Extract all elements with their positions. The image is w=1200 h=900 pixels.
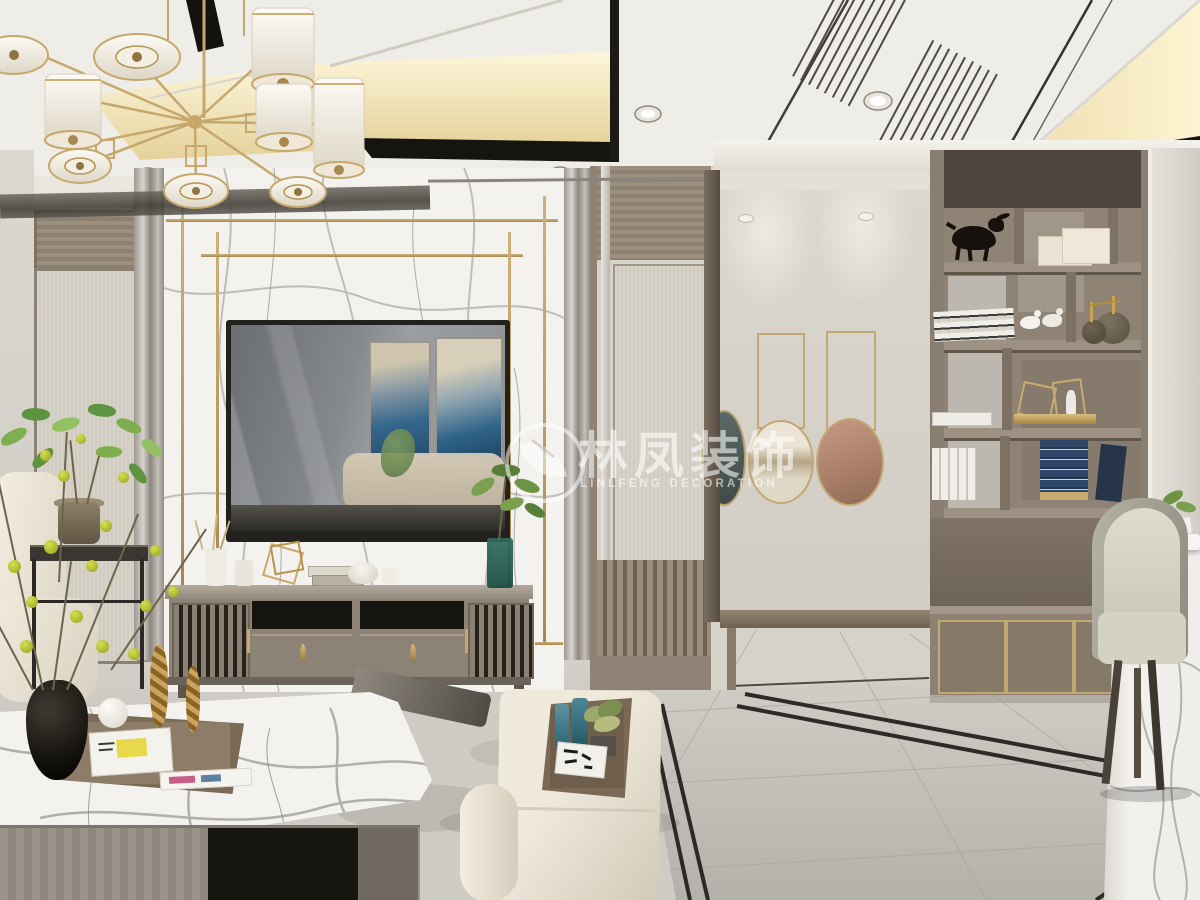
cabinet-door <box>1006 620 1074 694</box>
side-table-rail <box>32 600 144 603</box>
cabinet-open-shelf <box>252 601 352 629</box>
plate-hanger-frame <box>826 331 876 431</box>
gold-candlestick <box>150 645 168 727</box>
watermark-logo-icon <box>505 423 585 503</box>
hallway-baseboard <box>720 610 930 628</box>
yellow-label <box>116 738 147 758</box>
watermark-subtitle: LINLFENG DECORATION <box>580 478 830 490</box>
chair-leg <box>1134 668 1141 778</box>
gold-chandelier <box>0 0 380 245</box>
gold-frame-inlay <box>535 642 563 645</box>
hallway-downlight <box>738 214 754 223</box>
gold-figurines-on-stones <box>1082 296 1144 344</box>
teal-vase <box>555 704 569 746</box>
berry <box>86 560 98 572</box>
shelf-divider <box>1014 208 1024 264</box>
berry <box>58 470 70 482</box>
cabinet-top <box>165 585 533 599</box>
books-navy-stack <box>1040 440 1088 496</box>
door-pull <box>247 629 250 653</box>
tv-screen <box>231 325 505 531</box>
cabinet-plinth <box>167 677 531 685</box>
living-room-rendering: 林凤装饰 LINLFENG DECORATION <box>0 0 1200 900</box>
tv-reflection-cabinet <box>231 505 505 531</box>
gold-frame-inlay <box>216 232 219 585</box>
berry <box>96 640 109 653</box>
white-book <box>89 727 174 777</box>
drawer-handle <box>410 644 416 662</box>
berry <box>44 540 58 554</box>
hallway-door-jamb <box>704 170 720 622</box>
dining-chair-seat <box>1098 612 1186 664</box>
berry <box>150 545 161 556</box>
white-cards <box>554 741 607 778</box>
decor-box <box>1062 228 1110 264</box>
green-glass-vase <box>487 538 513 588</box>
coffee-table-niche <box>208 828 358 900</box>
gold-frame-inlay <box>201 254 523 257</box>
teal-vase <box>572 698 588 746</box>
berry <box>128 648 140 660</box>
white-bowl <box>348 562 378 584</box>
shelf-divider <box>1002 348 1012 430</box>
hallway-downlight <box>858 212 874 221</box>
berry <box>26 596 38 608</box>
cabinet-door <box>938 620 1006 694</box>
berry <box>40 450 51 461</box>
dove-figurines <box>1020 306 1064 336</box>
partition-slat-band <box>597 560 711 656</box>
white-vase <box>205 548 227 586</box>
berry <box>140 600 152 612</box>
shelf-divider <box>1066 272 1076 342</box>
books-flat <box>932 412 992 426</box>
watermark: 林凤装饰 LINLFENG DECORATION <box>490 408 830 512</box>
berry <box>100 520 112 532</box>
cabinet-slat-door <box>172 603 250 679</box>
shelf-top-shadow <box>930 150 1155 208</box>
books-stack <box>933 308 1014 342</box>
wall-mounted-tv <box>226 320 510 542</box>
chair-shadow <box>1100 786 1192 802</box>
books-gilt-edge <box>1040 492 1088 500</box>
berry <box>168 586 179 597</box>
coffee-table-side <box>358 828 418 900</box>
gold-wire-sculptures <box>1014 372 1096 428</box>
berry <box>118 472 129 483</box>
drawer-handle <box>300 644 306 662</box>
books-upright <box>932 448 976 500</box>
plant-pot <box>58 502 100 544</box>
bench-seam <box>502 807 656 813</box>
berry <box>70 610 83 623</box>
hallway-wall <box>720 190 930 614</box>
white-pot <box>235 560 253 586</box>
bench-rolled-arm <box>460 784 518 900</box>
cabinet-open-shelf <box>360 601 464 629</box>
berry <box>76 434 86 444</box>
chandelier-hub <box>188 115 202 129</box>
side-table-leg <box>32 559 36 689</box>
shelf-divider <box>1000 436 1010 510</box>
berry <box>8 560 21 573</box>
door-pull <box>465 629 468 653</box>
tv-cabinet <box>165 585 533 703</box>
partition-base <box>597 656 711 690</box>
gold-frame-inlay <box>181 196 184 585</box>
white-cup <box>382 568 396 584</box>
berry <box>20 640 33 653</box>
decor-sphere <box>98 698 128 728</box>
gold-geometric-sculpture <box>262 543 302 585</box>
cabinet-slat-door <box>468 603 534 679</box>
cabinet-drawer <box>252 634 352 676</box>
gold-candlestick <box>186 666 200 732</box>
hallway-header <box>720 172 930 192</box>
bull-sculpture <box>944 214 1010 262</box>
